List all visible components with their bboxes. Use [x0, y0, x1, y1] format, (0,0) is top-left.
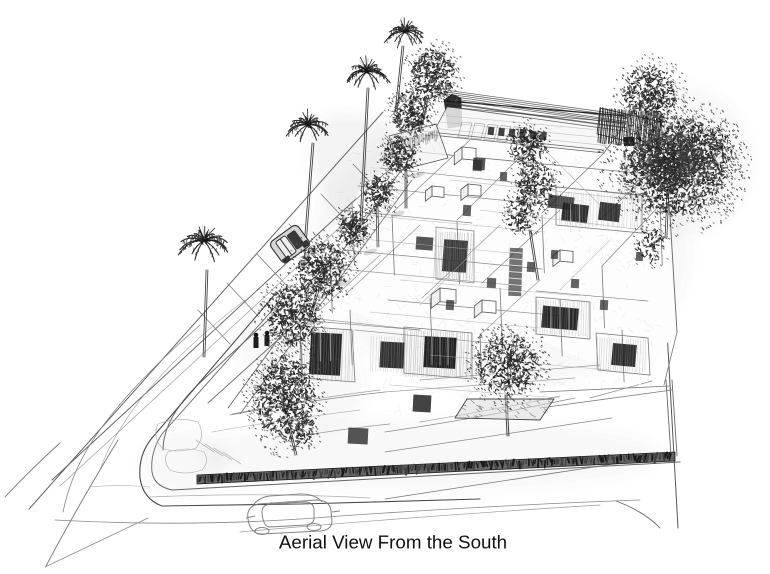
svg-text:Aerial View From the South: Aerial View From the South [279, 532, 507, 553]
